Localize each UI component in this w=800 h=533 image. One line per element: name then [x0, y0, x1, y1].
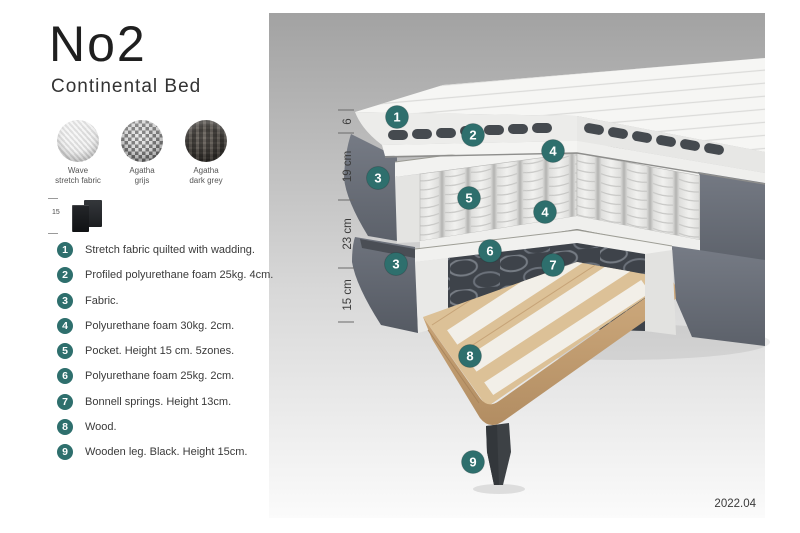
legend-text: Profiled polyurethane foam 25kg. 4cm. [85, 269, 273, 281]
parts-legend: 1Stretch fabric quilted with wadding. 2P… [57, 242, 273, 470]
legend-item-6: 6Polyurethane foam 25kg. 2cm. [57, 368, 273, 384]
legend-text: Wooden leg. Black. Height 15cm. [85, 446, 247, 458]
leg-shadow [473, 484, 525, 494]
legend-item-9: 9Wooden leg. Black. Height 15cm. [57, 444, 273, 460]
svg-text:4: 4 [541, 205, 549, 220]
fabric-swatches: Wavestretch fabric Agathagrijs Agathadar… [52, 120, 232, 187]
legend-badge: 3 [57, 293, 73, 309]
legend-text: Polyurethane foam 30kg. 2cm. [85, 320, 234, 332]
box-inner-wall-right [645, 250, 676, 335]
page-title: No2 [49, 18, 147, 71]
svg-text:8: 8 [466, 349, 473, 364]
fabric-sample-icon [121, 120, 163, 162]
legend-text: Wood. [85, 421, 117, 433]
callout-2: 2 [462, 124, 485, 147]
callout-3-upper: 3 [367, 167, 390, 190]
legend-badge: 6 [57, 368, 73, 384]
callout-9: 9 [462, 451, 485, 474]
legend-item-4: 4Polyurethane foam 30kg. 2cm. [57, 318, 273, 334]
legend-badge: 2 [57, 267, 73, 283]
fabric-sample-icon [185, 120, 227, 162]
legend-text: Bonnell springs. Height 13cm. [85, 396, 231, 408]
svg-text:6: 6 [486, 244, 493, 259]
legend-text: Fabric. [85, 295, 119, 307]
swatch-label: Agathadark grey [189, 166, 222, 187]
leg-thumbnail: 15 [48, 196, 108, 236]
measurement-label-23cm: 23 cm [342, 218, 354, 249]
legend-badge: 1 [57, 242, 73, 258]
legend-item-1: 1Stretch fabric quilted with wadding. [57, 242, 273, 258]
swatch-agatha-dark-grey: Agathadark grey [180, 120, 232, 187]
mattress-frame-strip [395, 174, 420, 243]
swatch-wave-stretch-fabric: Wavestretch fabric [52, 120, 104, 187]
svg-text:3: 3 [374, 171, 381, 186]
callout-6: 6 [479, 240, 502, 263]
svg-text:4: 4 [549, 144, 557, 159]
callout-7: 7 [542, 254, 565, 277]
svg-text:1: 1 [393, 110, 400, 125]
legend-badge: 8 [57, 419, 73, 435]
legend-item-2: 2Profiled polyurethane foam 25kg. 4cm. [57, 267, 273, 283]
svg-text:7: 7 [549, 258, 556, 273]
legend-item-5: 5Pocket. Height 15 cm. 5zones. [57, 343, 273, 359]
legend-badge: 4 [57, 318, 73, 334]
callout-4-bottom: 4 [534, 201, 557, 224]
legend-text: Polyurethane foam 25kg. 2cm. [85, 370, 234, 382]
callout-1: 1 [386, 106, 409, 129]
svg-text:2: 2 [469, 128, 476, 143]
measurement-label-6: 6 [342, 118, 354, 124]
svg-text:9: 9 [469, 455, 476, 470]
measurement-label-15cm: 15 cm [342, 279, 354, 310]
callout-8: 8 [459, 345, 482, 368]
legend-text: Stretch fabric quilted with wadding. [85, 244, 255, 256]
callout-5: 5 [458, 187, 481, 210]
leg-height-ruler [48, 198, 58, 234]
legend-text: Pocket. Height 15 cm. 5zones. [85, 345, 234, 357]
measurement-label-19cm: 19 cm [342, 151, 354, 182]
fabric-sample-icon [57, 120, 99, 162]
legend-badge: 9 [57, 444, 73, 460]
svg-text:3: 3 [392, 257, 399, 272]
svg-text:5: 5 [465, 191, 472, 206]
legend-badge: 7 [57, 394, 73, 410]
callout-4-top: 4 [542, 140, 565, 163]
bed-leg-icon [72, 205, 89, 232]
version-label: 2022.04 [714, 498, 756, 510]
swatch-label: Wavestretch fabric [55, 166, 101, 187]
legend-item-7: 7Bonnell springs. Height 13cm. [57, 394, 273, 410]
legend-badge: 5 [57, 343, 73, 359]
legend-item-3: 3Fabric. [57, 293, 273, 309]
page-subtitle: Continental Bed [51, 76, 201, 98]
callout-3-lower: 3 [385, 253, 408, 276]
legend-item-8: 8Wood. [57, 419, 273, 435]
swatch-agatha-grijs: Agathagrijs [116, 120, 168, 187]
leg-height-label: 15 [52, 209, 60, 216]
swatch-label: Agathagrijs [129, 166, 154, 187]
